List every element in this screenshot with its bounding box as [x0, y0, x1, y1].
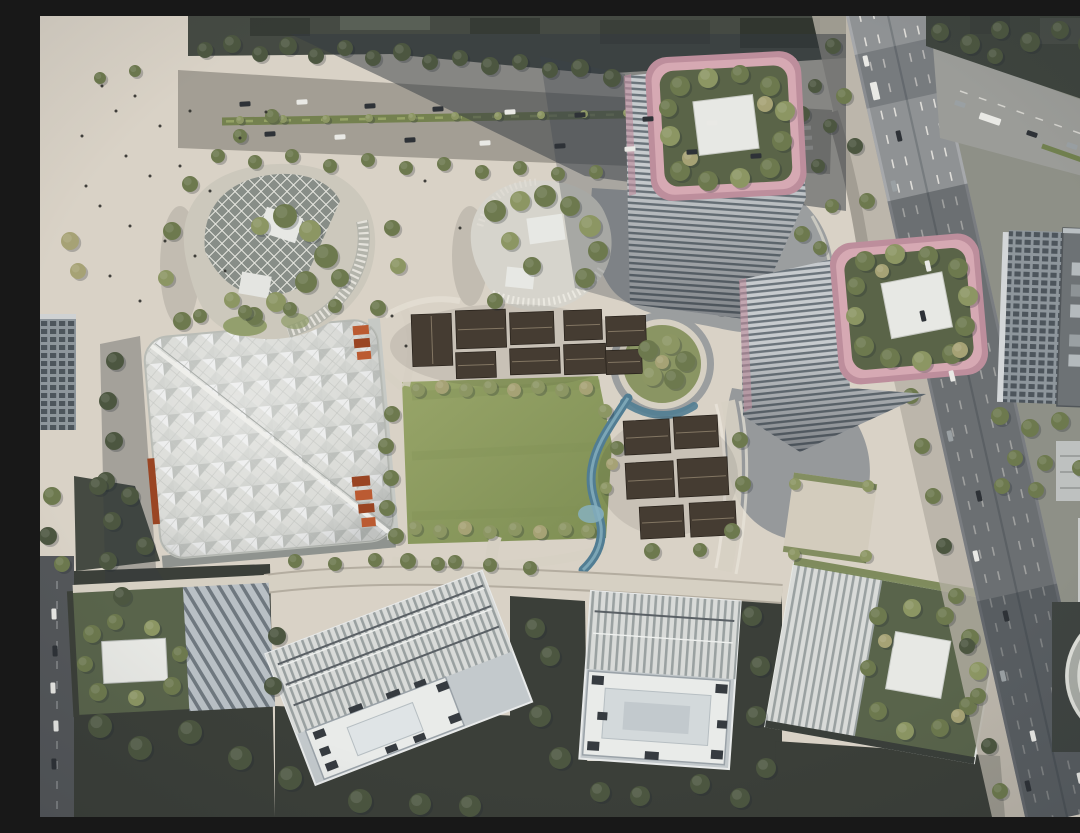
aerial-site-rendering: Aerial rendering of a mixed-use urban de…: [40, 16, 1080, 817]
rendering-canvas: [40, 16, 1080, 817]
vignette-overlay: [40, 16, 1080, 817]
